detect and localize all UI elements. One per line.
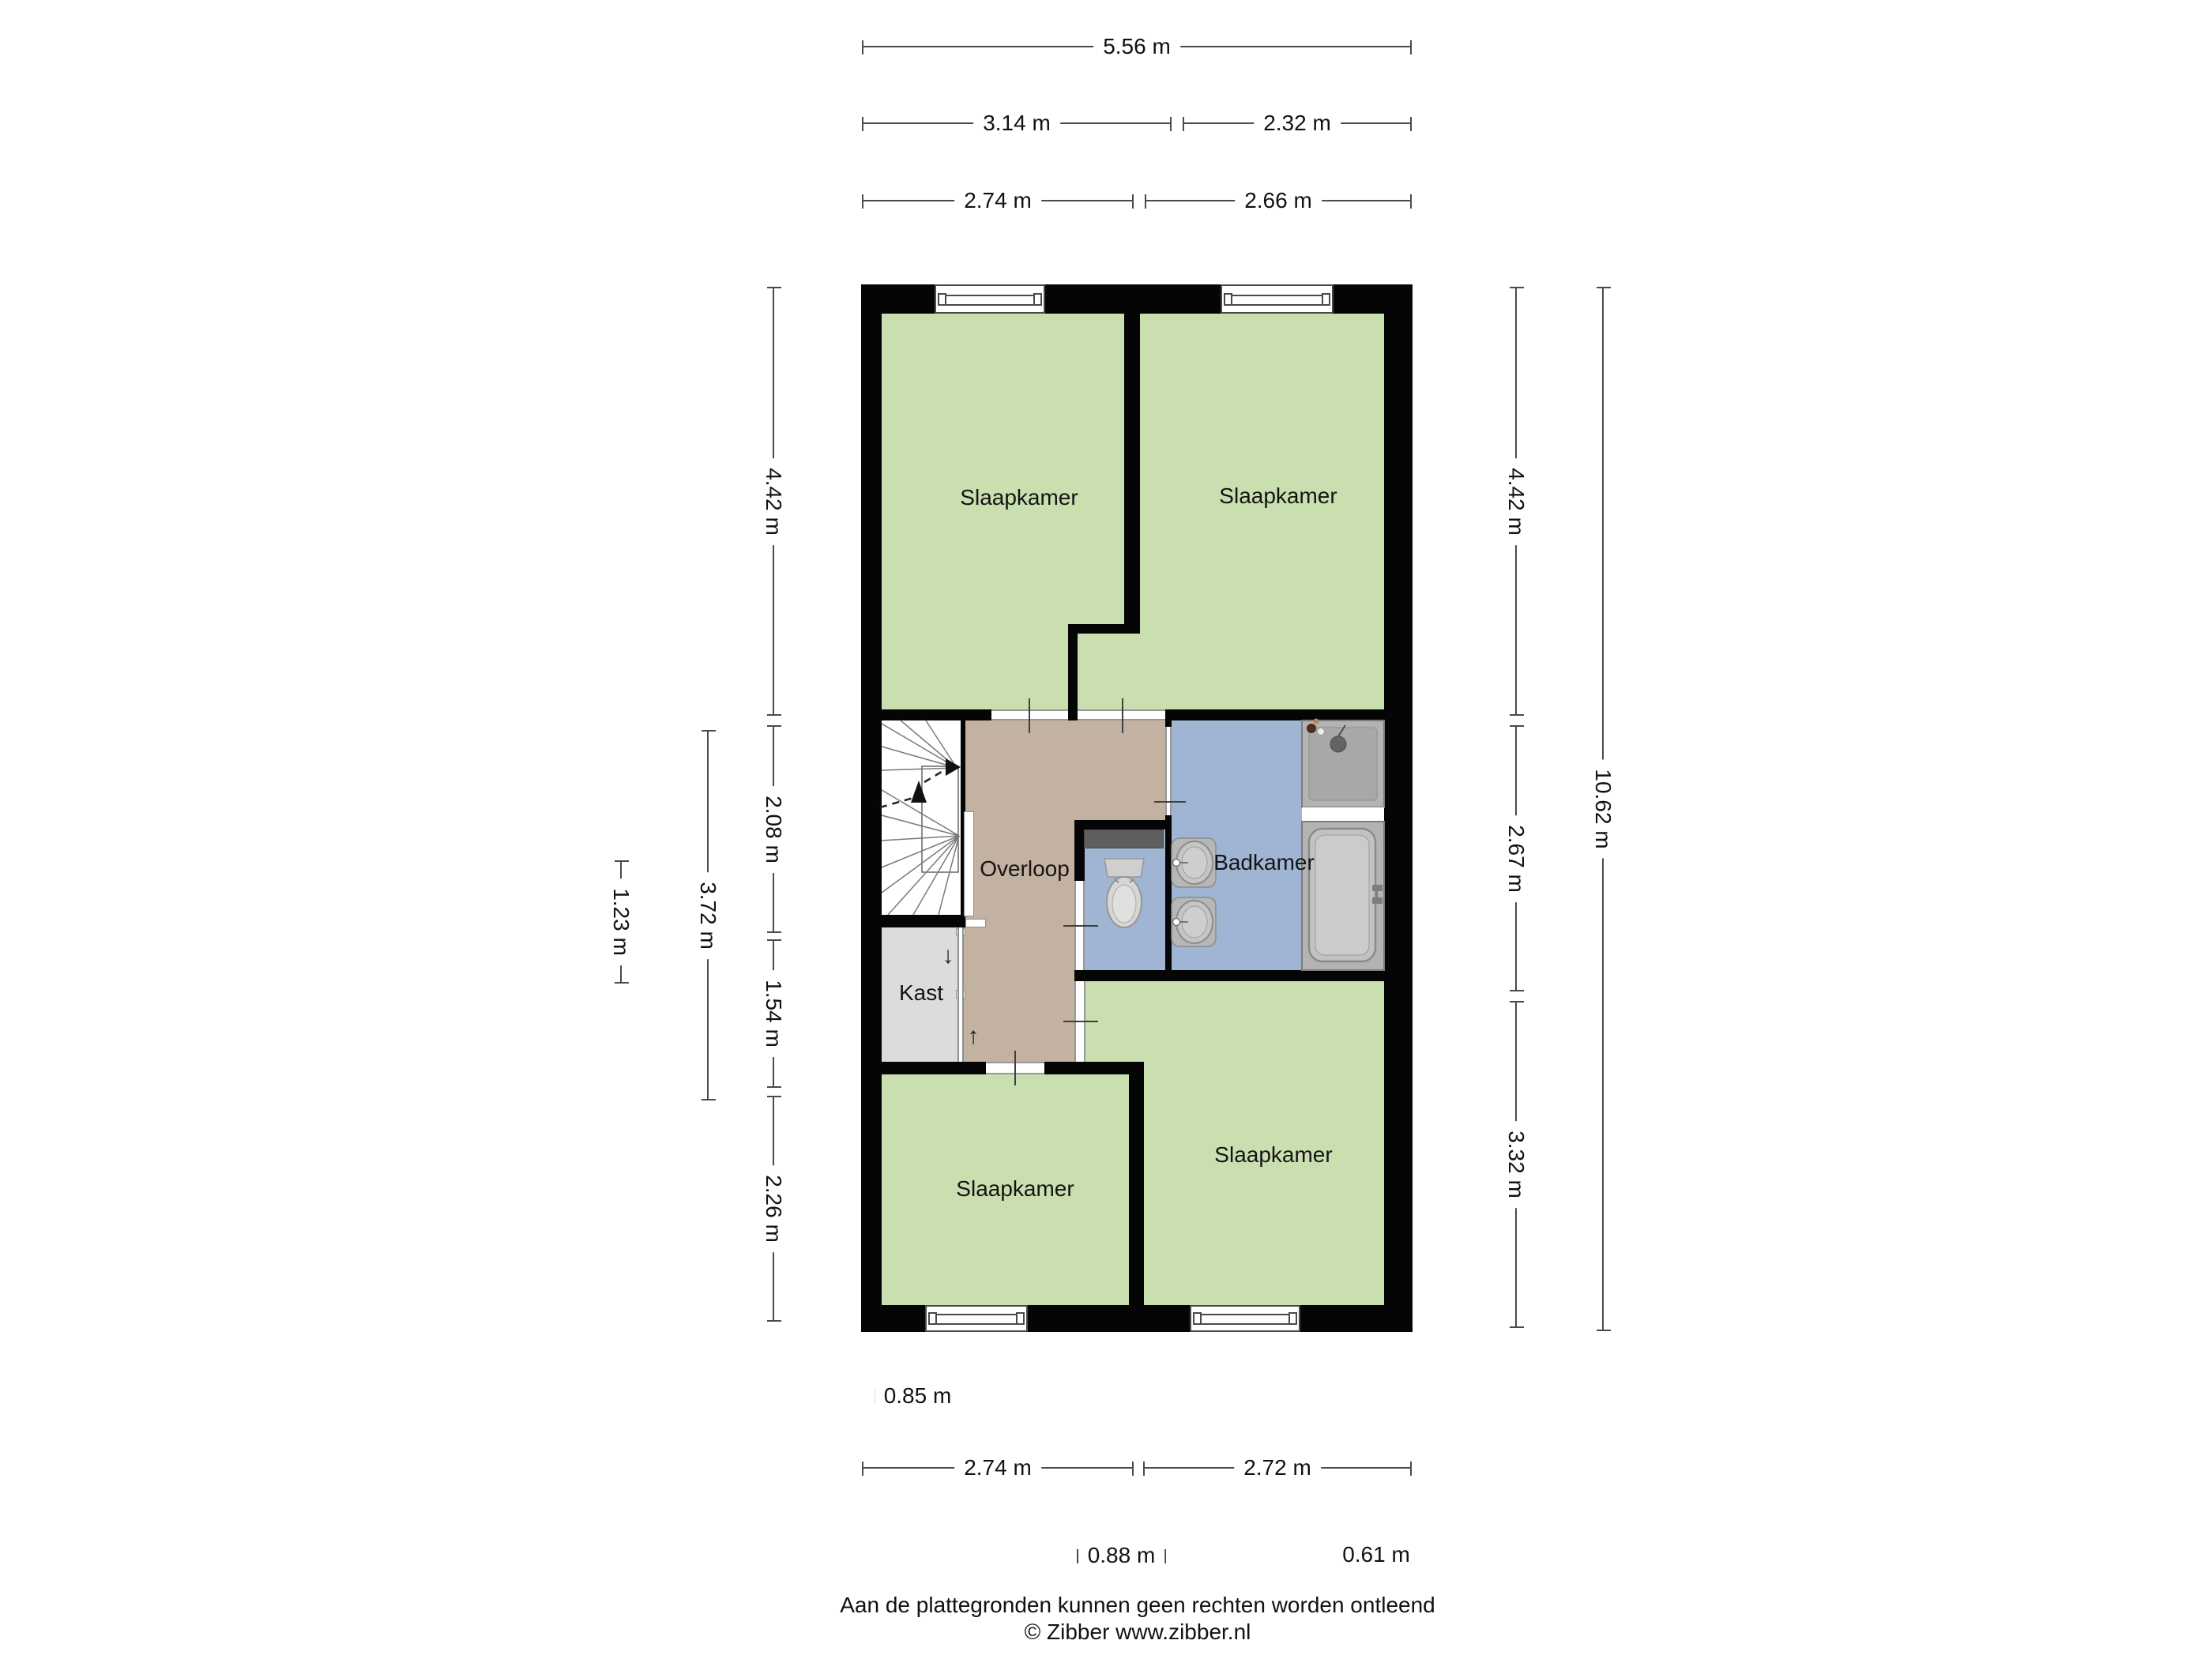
dimension-label: 3.72 m: [695, 872, 720, 959]
dimension-label: 5.56 m: [1093, 34, 1180, 59]
wall-wc-top: [1074, 820, 1172, 829]
dimension-bottom-door: 0.88 m: [1078, 1555, 1165, 1556]
dimension-label: 2.08 m: [761, 786, 786, 873]
window-glass-icon: [936, 1314, 1017, 1325]
wall-middle-band-left: [882, 709, 991, 720]
window-top-right: [1221, 284, 1334, 314]
room-wc-fill: [1085, 829, 1167, 972]
stairs-down-arrow-icon: ↓: [942, 942, 954, 969]
wall-middle-band-center: [1068, 709, 1078, 720]
dimension-bottom-stairs: 0.85 m: [875, 1395, 960, 1397]
dimension-label: 2.74 m: [954, 1455, 1041, 1480]
wall-bathroom-bottom: [1074, 970, 1384, 981]
wall-outer-right: [1384, 284, 1413, 1332]
dimension-label: 2.32 m: [1254, 111, 1341, 136]
wall-top-bedrooms-divider: [1124, 314, 1140, 634]
dimension-label: 1.54 m: [761, 970, 786, 1057]
dimension-right-bathroom-zone: 2.67 m: [1515, 726, 1517, 991]
window-cap-icon: [1016, 1312, 1025, 1325]
wall-closet-bottom: [882, 1062, 986, 1074]
window-cap-icon: [1288, 1312, 1297, 1325]
dimension-label: 2.67 m: [1503, 815, 1529, 902]
dimension-right-bottom-bedroom: 3.32 m: [1515, 1002, 1517, 1327]
wall-middle-band-right: [1165, 709, 1384, 720]
dimension-top-total: 5.56 m: [863, 46, 1411, 47]
dimension-label: 2.26 m: [761, 1165, 786, 1252]
wall-outer-left: [861, 284, 882, 1332]
dimension-label: 0.85 m: [875, 1383, 961, 1409]
wall-bathroom-left-stub: [1165, 720, 1172, 727]
wall-divider-jog-vertical: [1068, 634, 1078, 709]
door-tick-bedroom-bottom-right: [1063, 1021, 1098, 1022]
dimension-label: 2.74 m: [954, 188, 1041, 213]
stairwell-floor: [882, 720, 961, 915]
door-leaf-stairs-horizontal: [965, 919, 986, 927]
window-cap-icon: [928, 1312, 937, 1325]
footer-copyright: © Zibber www.zibber.nl: [1025, 1619, 1251, 1645]
room-label-bedroom-bottom-left: Slaapkamer: [956, 1176, 1074, 1202]
dimension-label: 0.88 m: [1078, 1543, 1165, 1568]
dimension-label: 4.42 m: [1503, 458, 1529, 545]
dimension-label: 3.14 m: [973, 111, 1060, 136]
door-tick-wc: [1063, 925, 1098, 927]
door-tick-bathroom: [1154, 801, 1186, 803]
dimension-bottom-room-left: 2.74 m: [863, 1467, 1133, 1469]
floorplan-canvas: Slaapkamer Slaapkamer Overloop Badkamer …: [0, 0, 2212, 1659]
wc-shelf: [1084, 829, 1164, 848]
door-tick-bedroom-bottom-left: [1014, 1051, 1016, 1085]
dimension-left-small: 1.23 m: [620, 861, 622, 983]
wall-stairs-bottom: [882, 915, 965, 927]
window-glass-icon: [1201, 1314, 1289, 1325]
room-label-bedroom-top-left: Slaapkamer: [960, 485, 1078, 510]
door-leaf-stairs-vertical: [964, 811, 974, 916]
door-tick-bedroom-top-right: [1122, 698, 1123, 733]
dimension-label: 2.72 m: [1234, 1455, 1321, 1480]
door-tick-bedroom-top-left: [1029, 698, 1030, 733]
room-label-bedroom-bottom-right: Slaapkamer: [1214, 1142, 1332, 1168]
window-cap-icon: [1322, 293, 1330, 306]
dimension-left-top-bedrooms: 4.42 m: [773, 288, 774, 715]
wall-divider-jog-horizontal: [1068, 624, 1140, 634]
dimension-left-middle-total: 3.72 m: [707, 731, 709, 1100]
window-glass-icon: [1232, 295, 1322, 306]
window-top-left: [935, 284, 1045, 314]
room-label-bathroom: Badkamer: [1213, 850, 1315, 875]
stairs-up-arrow-icon: ↑: [968, 1023, 980, 1050]
window-glass-icon: [946, 295, 1034, 306]
dimension-top-room-right: 2.66 m: [1145, 200, 1411, 201]
room-label-closet: Kast: [899, 980, 943, 1006]
window-cap-icon: [1193, 1312, 1202, 1325]
room-label-landing: Overloop: [980, 856, 1070, 882]
dimension-label: 10.62 m: [1590, 759, 1616, 858]
dimension-label: 2.66 m: [1235, 188, 1322, 213]
dimension-right-total: 10.62 m: [1602, 288, 1604, 1330]
dimension-left-closet-zone: 1.54 m: [773, 940, 774, 1087]
dimension-top-left-part: 3.14 m: [863, 122, 1171, 124]
footer-disclaimer: Aan de plattegronden kunnen geen rechten…: [840, 1593, 1435, 1618]
dimension-top-right-part: 2.32 m: [1183, 122, 1411, 124]
wall-bathroom-left: [1165, 815, 1172, 972]
dimension-bottom-room-right: 2.72 m: [1144, 1467, 1411, 1469]
room-label-bedroom-top-right: Slaapkamer: [1219, 483, 1337, 509]
room-bathroom-fill: [1172, 720, 1384, 972]
window-bottom-right: [1190, 1305, 1300, 1332]
dimension-left-stairs-zone: 2.08 m: [773, 726, 774, 932]
dimension-left-bottom-bedroom: 2.26 m: [773, 1097, 774, 1321]
window-cap-icon: [1224, 293, 1232, 306]
window-bottom-left: [925, 1305, 1028, 1332]
dimension-label: 1.23 m: [608, 878, 634, 965]
window-cap-icon: [938, 293, 946, 306]
dimension-bottom-small: 0.61 m: [1342, 1542, 1410, 1567]
window-cap-icon: [1033, 293, 1042, 306]
dimension-right-top-bedrooms: 4.42 m: [1515, 288, 1517, 715]
dimension-label: 3.32 m: [1503, 1121, 1529, 1208]
dimension-top-room-left: 2.74 m: [863, 200, 1133, 201]
closet-sliding-door: [957, 927, 964, 1062]
wall-bottom-bedrooms-divider: [1129, 1073, 1144, 1305]
dimension-label: 4.42 m: [761, 458, 786, 545]
